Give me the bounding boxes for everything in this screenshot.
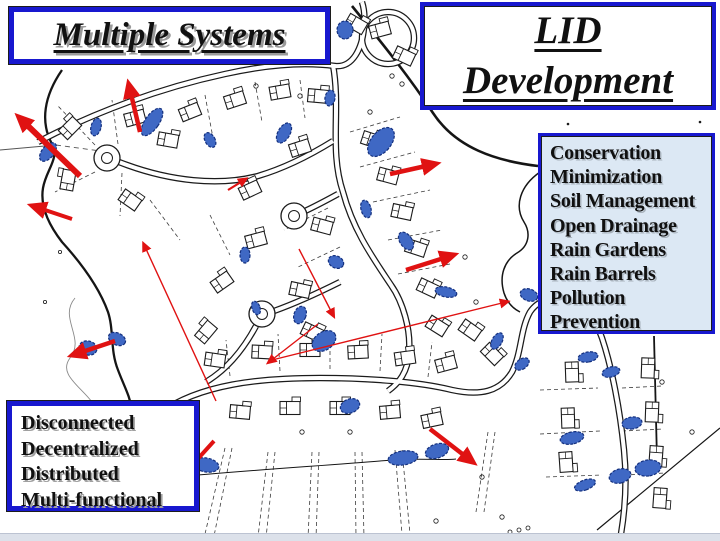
practice-item: Pollution (550, 286, 704, 310)
practice-item: Prevention (550, 310, 704, 334)
practice-item: Open Drainage (550, 214, 704, 238)
principle-item: Decentralized (21, 437, 186, 463)
principle-item: Multi-functional (21, 488, 186, 514)
slide: Multiple Systems LID Development Conserv… (0, 0, 720, 540)
practice-item: Soil Management (550, 189, 704, 213)
lid-title-line1: LID (534, 6, 601, 56)
principle-item: Distributed (21, 462, 186, 488)
contour-lines-layer (0, 145, 108, 402)
multiple-systems-title: Multiple Systems (54, 17, 286, 54)
practice-item: Minimization (550, 165, 704, 189)
callout-lid-practices: Conservation Minimization Soil Managemen… (538, 133, 715, 334)
practice-item: Conservation (550, 141, 704, 165)
callout-lid-development: LID Development (420, 2, 716, 110)
practice-item: Rain Barrels (550, 262, 704, 286)
practice-item: Rain Gardens (550, 238, 704, 262)
callout-lid-principles: Disconnected Decentralized Distributed M… (7, 401, 199, 511)
callout-multiple-systems: Multiple Systems (9, 7, 330, 64)
lid-title-line2: Development (463, 56, 673, 106)
stream-line (42, 70, 132, 458)
principle-item: Disconnected (21, 411, 186, 437)
